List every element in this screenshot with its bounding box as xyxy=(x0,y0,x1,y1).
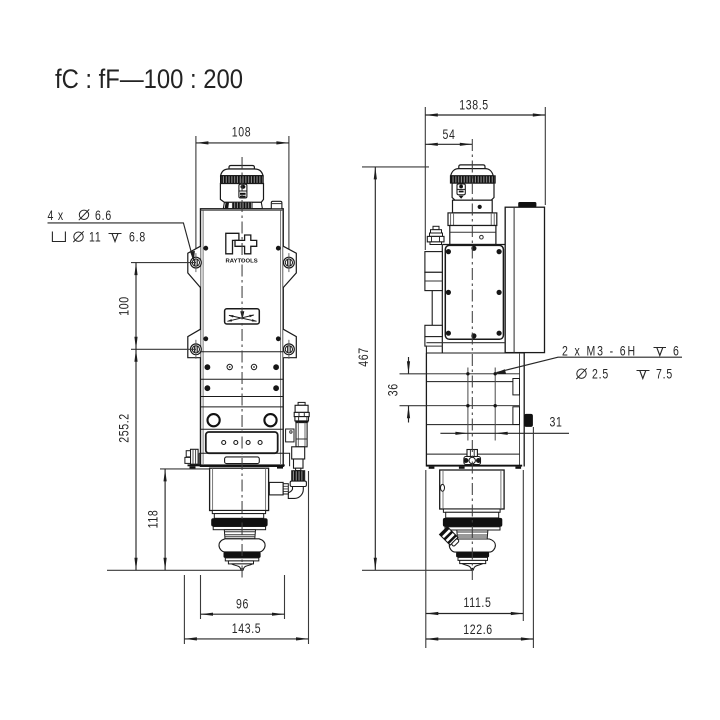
svg-text:118: 118 xyxy=(145,510,161,529)
svg-text:108: 108 xyxy=(232,124,251,140)
svg-text:31: 31 xyxy=(550,414,563,430)
svg-text:138.5: 138.5 xyxy=(459,97,488,113)
svg-text:6.6: 6.6 xyxy=(95,208,112,224)
svg-text:7.5: 7.5 xyxy=(656,366,673,382)
svg-text:143.5: 143.5 xyxy=(232,621,261,637)
svg-text:2.5: 2.5 xyxy=(592,366,609,382)
svg-text:6: 6 xyxy=(673,343,680,359)
svg-text:2 x M3 - 6H: 2 x M3 - 6H xyxy=(562,343,637,359)
svg-text:255.2: 255.2 xyxy=(116,413,132,442)
svg-text:36: 36 xyxy=(385,383,401,396)
svg-text:96: 96 xyxy=(236,596,249,612)
svg-text:111.5: 111.5 xyxy=(464,595,492,611)
svg-text:fC : fF—100 : 200: fC : fF—100 : 200 xyxy=(55,64,243,94)
svg-text:100: 100 xyxy=(116,296,132,315)
svg-text:6.8: 6.8 xyxy=(129,229,146,245)
svg-text:54: 54 xyxy=(443,127,456,143)
svg-text:122.6: 122.6 xyxy=(463,622,492,638)
svg-text:467: 467 xyxy=(356,347,372,366)
svg-text:11: 11 xyxy=(89,229,101,245)
svg-text:4 x: 4 x xyxy=(48,208,64,224)
